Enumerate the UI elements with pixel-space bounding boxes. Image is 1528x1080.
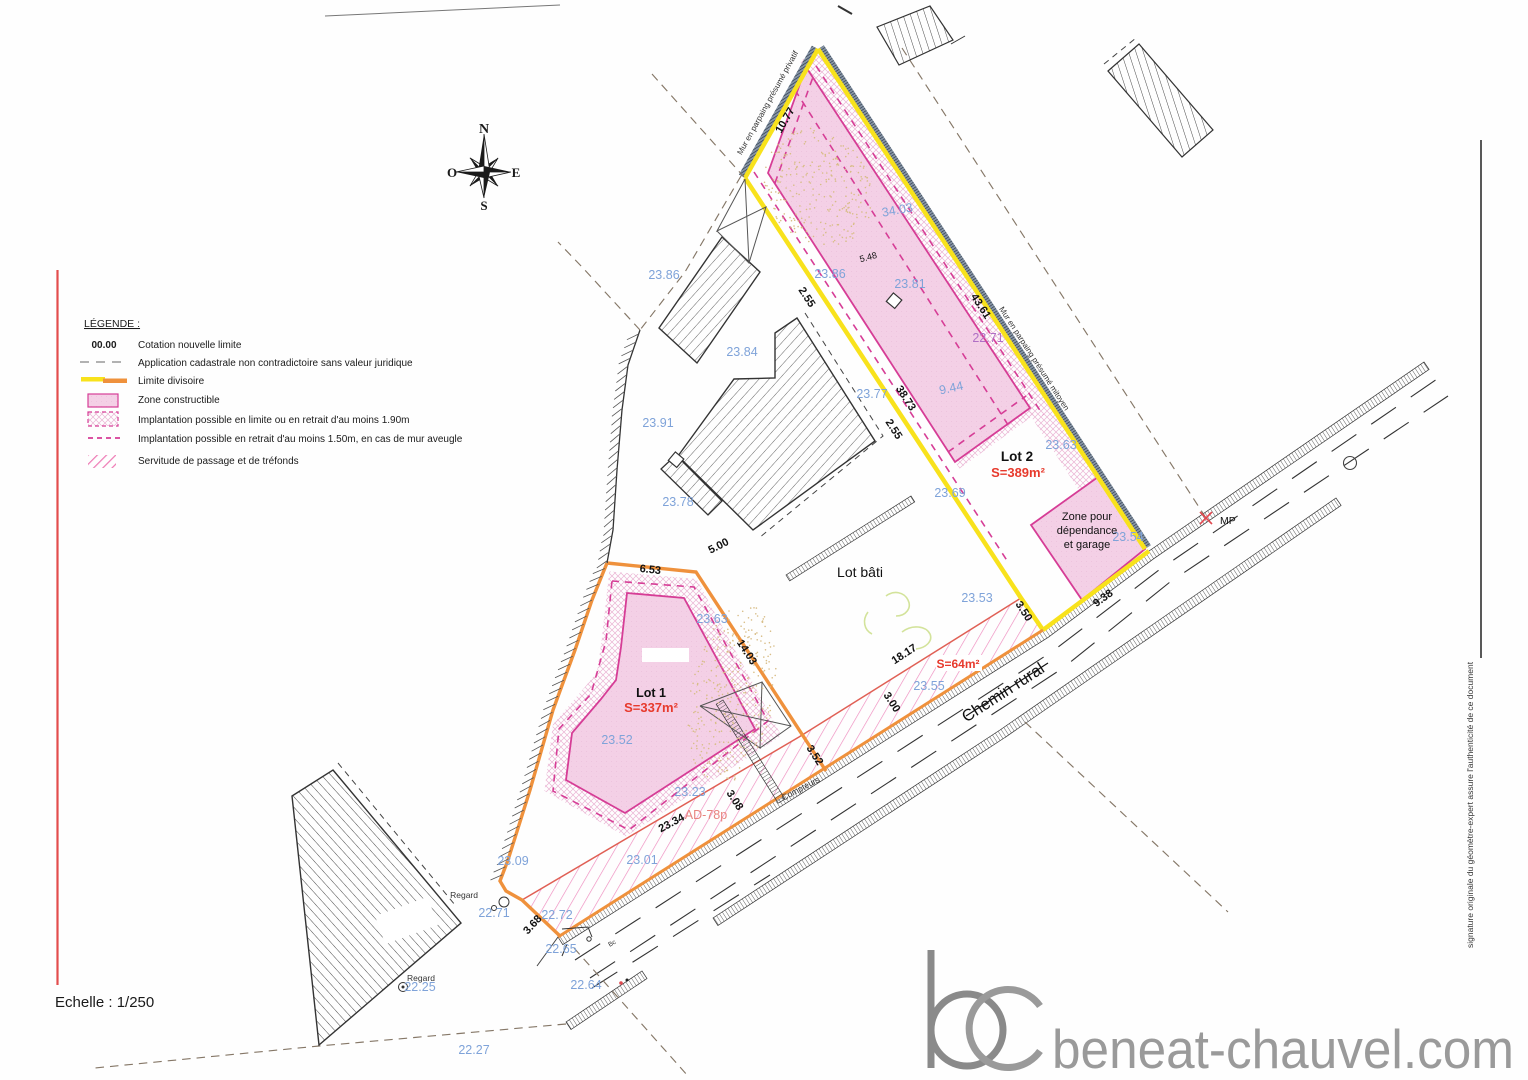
svg-text:Echelle : 1/250: Echelle : 1/250 [55, 994, 154, 1011]
svg-text:Servitude de passage et de tré: Servitude de passage et de tréfonds [138, 456, 299, 467]
svg-text:N: N [479, 122, 489, 137]
svg-text:22.64: 22.64 [570, 978, 601, 992]
svg-text:MP: MP [1220, 515, 1236, 527]
svg-text:LÉGENDE :: LÉGENDE : [84, 317, 140, 330]
svg-text:22.27: 22.27 [458, 1043, 489, 1057]
svg-text:S=337m²: S=337m² [624, 700, 679, 715]
svg-text:23.81: 23.81 [894, 277, 925, 291]
svg-text:23.63: 23.63 [1045, 438, 1076, 452]
svg-text:23.63: 23.63 [696, 612, 727, 626]
svg-text:Application cadastrale non con: Application cadastrale non contradictoir… [138, 358, 413, 369]
svg-text:Zone pour: Zone pour [1062, 511, 1112, 523]
svg-text:et garage: et garage [1064, 539, 1110, 551]
svg-text:Limite divisoire: Limite divisoire [138, 376, 205, 387]
svg-text:23.23: 23.23 [674, 785, 705, 799]
svg-text:22.72: 22.72 [541, 908, 572, 922]
svg-text:S=389m²: S=389m² [991, 465, 1046, 480]
svg-text:00.00: 00.00 [91, 340, 116, 351]
svg-text:23.09: 23.09 [497, 854, 528, 868]
svg-text:Implantation possible en limit: Implantation possible en limite ou en re… [138, 415, 410, 426]
svg-text:22.71: 22.71 [478, 906, 509, 920]
svg-text:23.53: 23.53 [961, 591, 992, 605]
svg-text:Implantation possible en retra: Implantation possible en retrait d'au mo… [138, 434, 463, 445]
svg-text:23.52: 23.52 [601, 733, 632, 747]
svg-text:Cotation nouvelle limite: Cotation nouvelle limite [138, 340, 242, 351]
svg-text:23.78: 23.78 [662, 495, 693, 509]
svg-text:23.86: 23.86 [648, 268, 679, 282]
svg-text:23.91: 23.91 [642, 416, 673, 430]
svg-text:22.65: 22.65 [545, 942, 576, 956]
svg-text:Regard: Regard [407, 973, 435, 983]
svg-text:beneat-chauvel.com: beneat-chauvel.com [1052, 1018, 1514, 1080]
svg-text:dépendance: dépendance [1057, 525, 1118, 537]
svg-text:23.86: 23.86 [814, 267, 845, 281]
svg-text:23.69: 23.69 [934, 486, 965, 500]
svg-text:signature originale du géomètr: signature originale du géomètre-expert a… [1465, 661, 1475, 948]
svg-text:AD-78p: AD-78p [685, 808, 727, 822]
svg-text:6.53: 6.53 [639, 563, 662, 577]
svg-text:S=64m²: S=64m² [936, 657, 979, 671]
svg-text:O: O [447, 165, 457, 180]
svg-text:23.01: 23.01 [626, 853, 657, 867]
svg-text:Lot 2: Lot 2 [1001, 449, 1033, 464]
svg-text:Lot 1: Lot 1 [636, 686, 666, 700]
svg-text:22.71: 22.71 [972, 331, 1003, 345]
svg-text:S: S [480, 198, 487, 213]
svg-text:E: E [512, 165, 521, 180]
svg-text:23.55: 23.55 [913, 679, 944, 693]
svg-text:Zone constructible: Zone constructible [138, 395, 220, 406]
svg-text:Regard: Regard [450, 890, 478, 900]
svg-text:23.77: 23.77 [856, 387, 887, 401]
svg-text:23.84: 23.84 [726, 345, 757, 359]
svg-text:Lot bâti: Lot bâti [837, 564, 883, 580]
